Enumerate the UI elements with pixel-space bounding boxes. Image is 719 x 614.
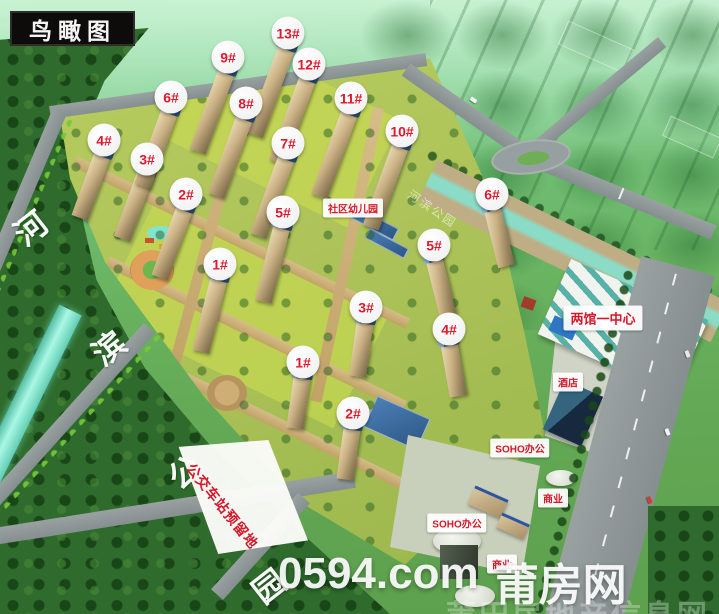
view-title-text: 鸟瞰图 [29, 12, 116, 46]
building-marker-10: 10# [386, 115, 419, 148]
building-marker-12: 12# [293, 48, 326, 81]
building-marker-1: 1# [287, 346, 320, 379]
building-marker-6: 6# [155, 81, 188, 114]
building-marker-4: 4# [88, 124, 121, 157]
building-marker-8: 8# [230, 87, 263, 120]
view-title-badge: 鸟瞰图 [10, 11, 135, 46]
building-marker-6: 6# [476, 178, 509, 211]
building-marker-4: 4# [433, 313, 466, 346]
facility-label: SOHO办公 [490, 439, 549, 458]
facility-label: 商业 [538, 489, 568, 508]
site-watermark-subtitle: 莆田房地产信息网 [446, 591, 710, 614]
building-marker-9: 9# [212, 41, 245, 74]
facility-label: 酒店 [553, 373, 583, 392]
building-marker-2: 2# [337, 397, 370, 430]
building-marker-2: 2# [170, 178, 203, 211]
building-marker-5: 5# [418, 229, 451, 262]
building-marker-7: 7# [272, 127, 305, 160]
aerial-masterplan-rendering: 4#3#2#6#9#13#12#8#11#7#10#5#1#6#5#4#3#1#… [0, 0, 719, 614]
annotations-layer: 4#3#2#6#9#13#12#8#11#7#10#5#1#6#5#4#3#1#… [0, 0, 719, 614]
park-name-character: 滨 [81, 319, 135, 375]
building-marker-3: 3# [131, 143, 164, 176]
building-marker-11: 11# [335, 82, 368, 115]
building-marker-5: 5# [267, 196, 300, 229]
facility-label: 两馆一中心 [563, 306, 642, 331]
park-name-character: 河 [3, 199, 57, 255]
building-marker-1: 1# [204, 248, 237, 281]
facility-label: 社区幼儿园 [323, 199, 383, 218]
building-marker-13: 13# [272, 17, 305, 50]
building-marker-3: 3# [350, 291, 383, 324]
facility-label: SOHO办公 [427, 514, 486, 533]
